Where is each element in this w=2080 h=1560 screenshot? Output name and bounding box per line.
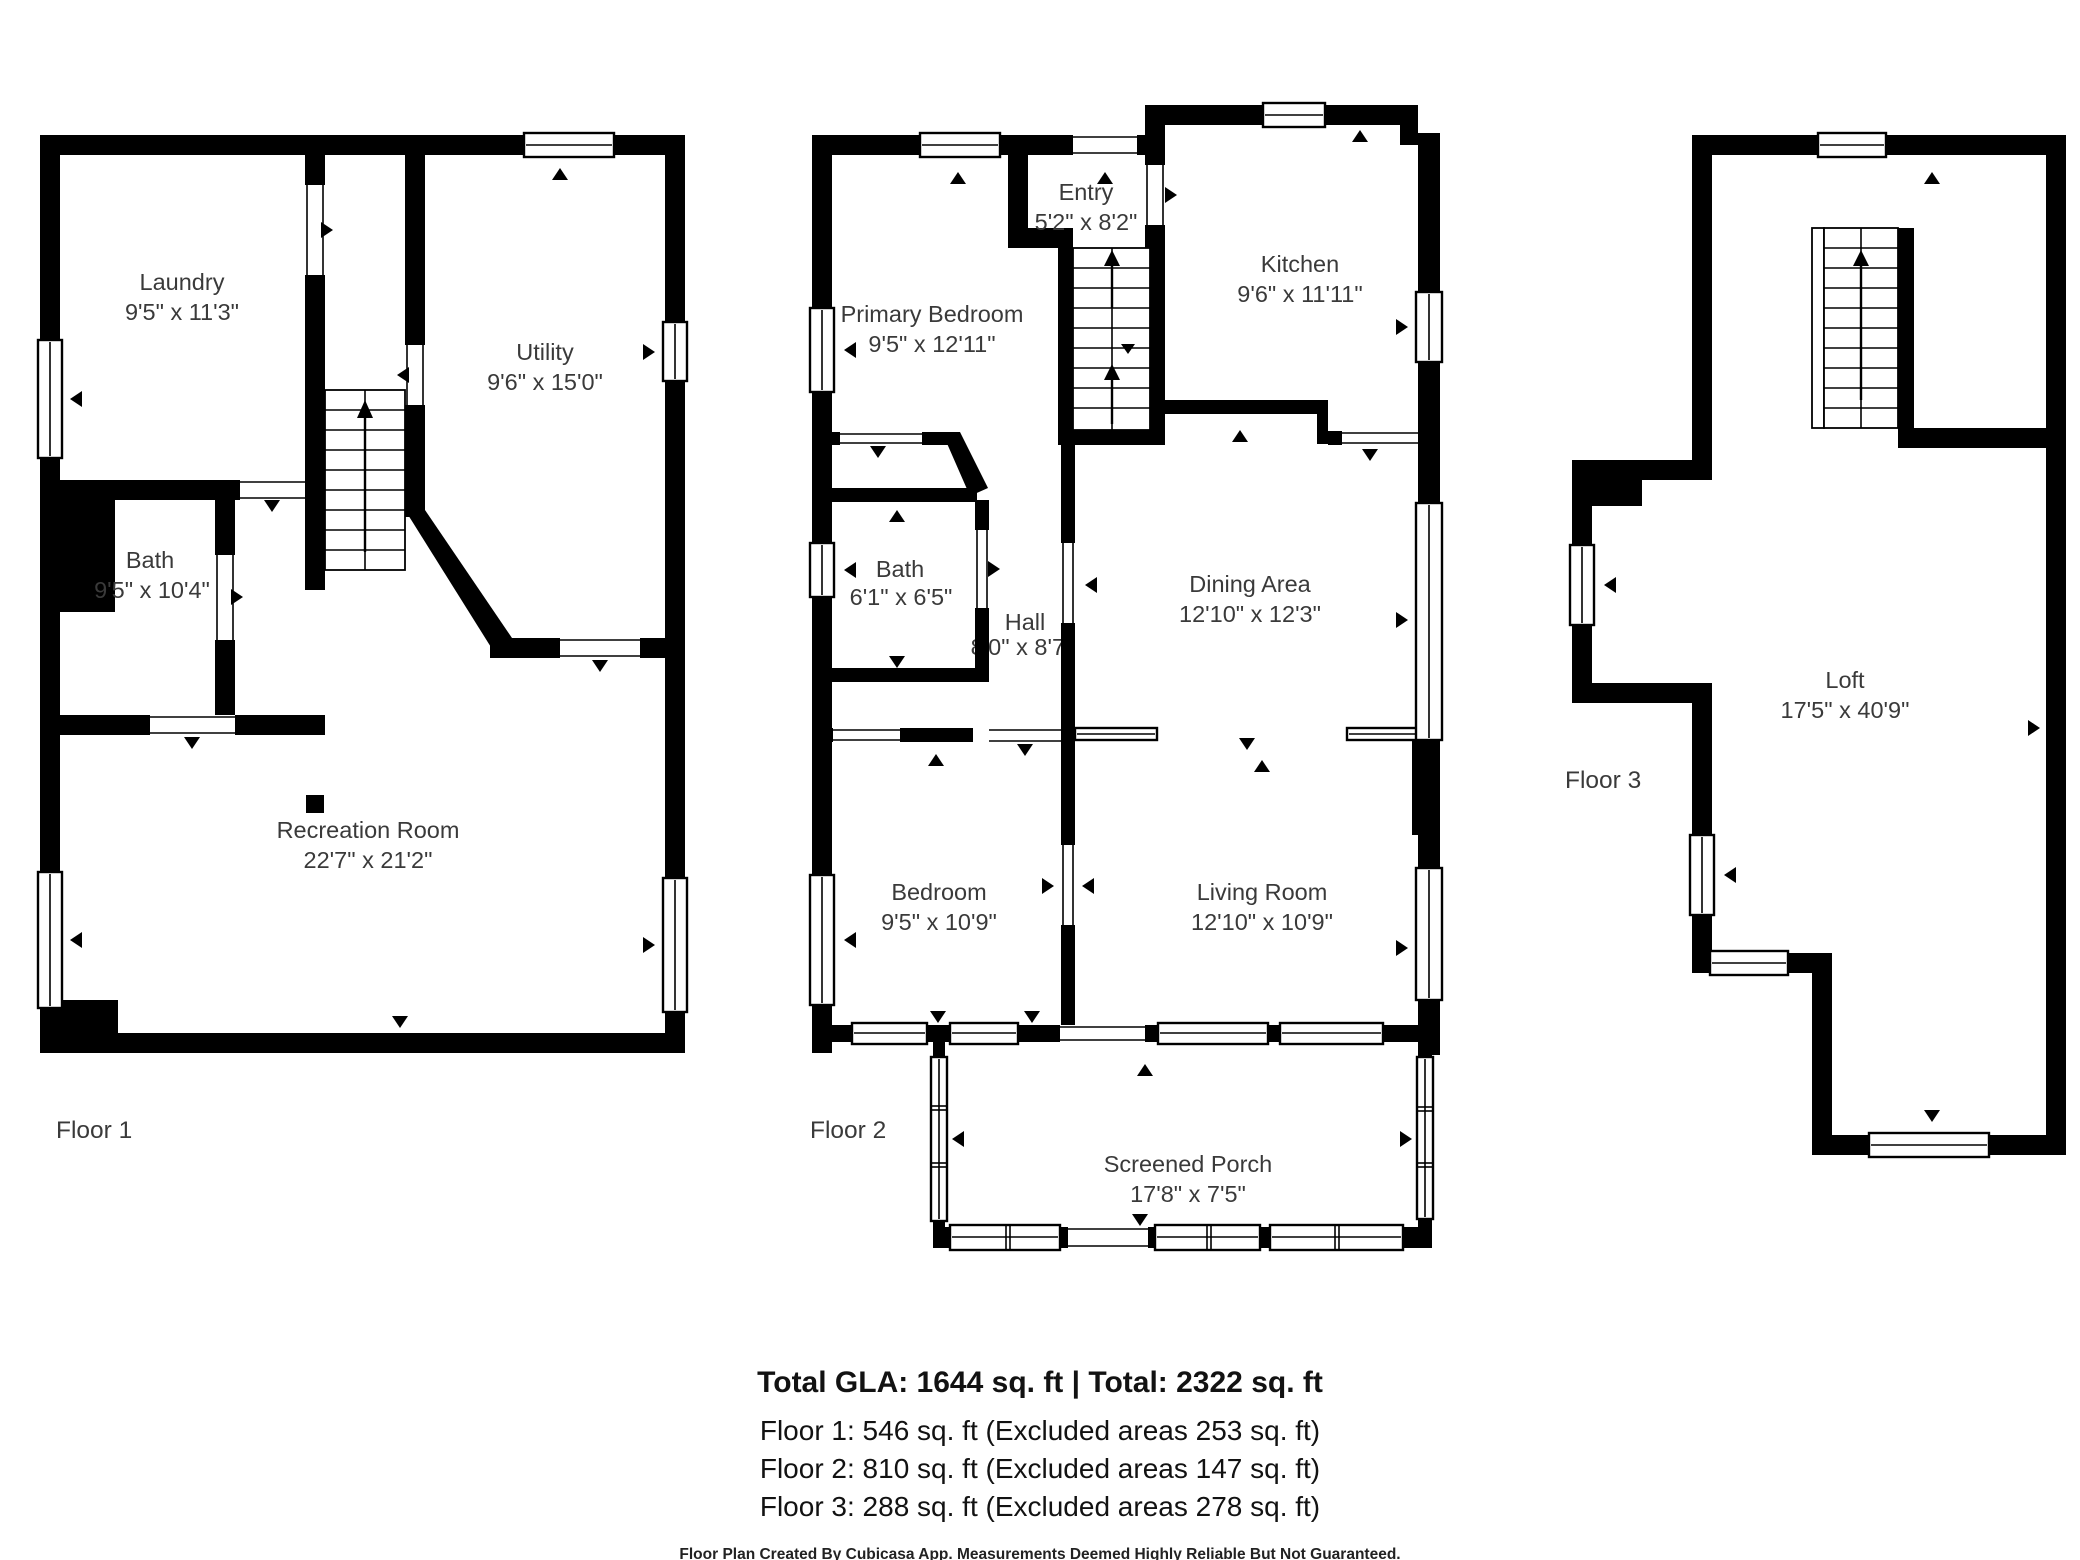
room-label-bath-f2: Bath xyxy=(876,556,924,582)
door-arrow-icon xyxy=(1137,1064,1153,1076)
floor-2-staircase xyxy=(1073,248,1150,430)
room-label-bath-f1: Bath xyxy=(126,547,174,573)
window-marker-icon xyxy=(643,937,655,953)
summary-floor-3: Floor 3: 288 sq. ft (Excluded areas 278 … xyxy=(0,1488,2080,1526)
door-arrow-icon xyxy=(1132,1214,1148,1226)
room-dims-loft: 17'5" x 40'9" xyxy=(1781,697,1910,723)
room-dims-bedroom: 9'5" x 10'9" xyxy=(881,909,997,935)
door-arrow-icon xyxy=(231,589,243,605)
room-dims-primary-bedroom: 9'5" x 12'11" xyxy=(868,331,995,357)
opening-marker-icon xyxy=(1239,738,1255,750)
floor-plan-document: Laundry 9'5" x 11'3" Utility 9'6" x 15'0… xyxy=(0,0,2080,1560)
window-marker-icon xyxy=(844,562,856,578)
window-marker-icon xyxy=(1604,577,1616,593)
door-arrow-icon xyxy=(397,367,409,383)
window-marker-icon xyxy=(1396,319,1408,335)
room-label-entry: Entry xyxy=(1059,179,1114,205)
window-marker-icon xyxy=(1924,172,1940,184)
room-dims-dining: 12'10" x 12'3" xyxy=(1179,601,1321,627)
room-dims-screened-porch: 17'8" x 7'5" xyxy=(1130,1181,1246,1207)
window-marker-icon xyxy=(952,1131,964,1147)
summary-total-gla: Total GLA: 1644 sq. ft | Total: 2322 sq.… xyxy=(0,1366,2080,1400)
window-marker-icon xyxy=(1400,1131,1412,1147)
floor-1-plan: Laundry 9'5" x 11'3" Utility 9'6" x 15'0… xyxy=(38,133,687,1144)
window-marker-icon xyxy=(2028,720,2040,736)
window-marker-icon xyxy=(70,932,82,948)
floor-2-label: Floor 2 xyxy=(810,1117,886,1144)
window-marker-icon xyxy=(552,168,568,180)
door-arrow-icon xyxy=(1165,187,1177,203)
door-arrow-icon xyxy=(321,222,333,238)
floor-1-label: Floor 1 xyxy=(56,1117,132,1144)
door-arrow-icon xyxy=(1362,449,1378,461)
opening-marker-icon xyxy=(1254,760,1270,772)
room-label-dining: Dining Area xyxy=(1189,571,1311,597)
area-summary: Total GLA: 1644 sq. ft | Total: 2322 sq.… xyxy=(0,1366,2080,1560)
room-label-screened-porch: Screened Porch xyxy=(1104,1151,1273,1177)
floor-3-staircase xyxy=(1812,228,1898,428)
room-label-loft: Loft xyxy=(1825,667,1865,693)
door-arrow-icon xyxy=(1024,1011,1040,1023)
door-arrow-icon xyxy=(928,754,944,766)
door-arrow-icon xyxy=(1017,744,1033,756)
floor-3-windows xyxy=(1570,133,2040,1157)
door-arrow-icon xyxy=(870,446,886,458)
room-label-primary-bedroom: Primary Bedroom xyxy=(841,301,1024,327)
window-marker-icon xyxy=(930,1011,946,1023)
door-arrow-icon xyxy=(1085,577,1097,593)
floor-1-staircase xyxy=(325,390,405,570)
room-dims-kitchen: 9'6" x 11'11" xyxy=(1237,281,1362,307)
door-arrow-icon xyxy=(889,510,905,522)
room-label-kitchen: Kitchen xyxy=(1261,251,1339,277)
room-label-hall: Hall xyxy=(1005,609,1045,635)
window-marker-icon xyxy=(1396,940,1408,956)
floor-3-plan: Loft 17'5" x 40'9" Floor 3 xyxy=(1565,133,2066,1157)
room-dims-utility: 9'6" x 15'0" xyxy=(487,369,603,395)
door-arrow-icon xyxy=(1232,430,1248,442)
window-marker-icon xyxy=(1396,612,1408,628)
window-marker-icon xyxy=(950,172,966,184)
door-arrow-icon xyxy=(1082,878,1094,894)
summary-floor-1: Floor 1: 546 sq. ft (Excluded areas 253 … xyxy=(0,1412,2080,1450)
window-marker-icon xyxy=(1724,867,1736,883)
room-dims-living-room: 12'10" x 10'9" xyxy=(1191,909,1333,935)
room-dims-bath-f1: 9'5" x 10'4" xyxy=(94,577,210,603)
room-dims-entry: 5'2" x 8'2" xyxy=(1035,209,1138,235)
floor-plans-canvas: Laundry 9'5" x 11'3" Utility 9'6" x 15'0… xyxy=(0,0,2080,1560)
room-dims-recreation: 22'7" x 21'2" xyxy=(304,847,433,873)
door-arrow-icon xyxy=(592,660,608,672)
fireplace-block xyxy=(306,795,324,813)
summary-floor-2: Floor 2: 810 sq. ft (Excluded areas 147 … xyxy=(0,1450,2080,1488)
room-label-laundry: Laundry xyxy=(140,269,225,295)
room-label-living-room: Living Room xyxy=(1197,879,1328,905)
floor-2-plan: 8'0" x 8'7" xyxy=(810,103,1442,1250)
floor-3-label: Floor 3 xyxy=(1565,767,1641,794)
room-dims-bath-f2: 6'1" x 6'5" xyxy=(850,584,953,610)
window-marker-icon xyxy=(643,344,655,360)
window-marker-icon xyxy=(1924,1110,1940,1122)
window-marker-icon xyxy=(844,342,856,358)
room-label-recreation: Recreation Room xyxy=(277,817,460,843)
window-marker-icon xyxy=(1352,130,1368,142)
door-arrow-icon xyxy=(889,656,905,668)
window-marker-icon xyxy=(70,391,82,407)
door-arrow-icon xyxy=(264,500,280,512)
door-arrow-icon xyxy=(988,561,1000,577)
door-arrow-icon xyxy=(184,737,200,749)
door-arrow-icon xyxy=(392,1016,408,1028)
room-dims-laundry: 9'5" x 11'3" xyxy=(125,299,239,325)
disclaimer-text: Floor Plan Created By Cubicasa App. Meas… xyxy=(0,1546,2080,1560)
room-label-bedroom: Bedroom xyxy=(891,879,986,905)
door-arrow-icon xyxy=(1042,878,1054,894)
room-label-utility: Utility xyxy=(516,339,574,365)
window-marker-icon xyxy=(844,932,856,948)
